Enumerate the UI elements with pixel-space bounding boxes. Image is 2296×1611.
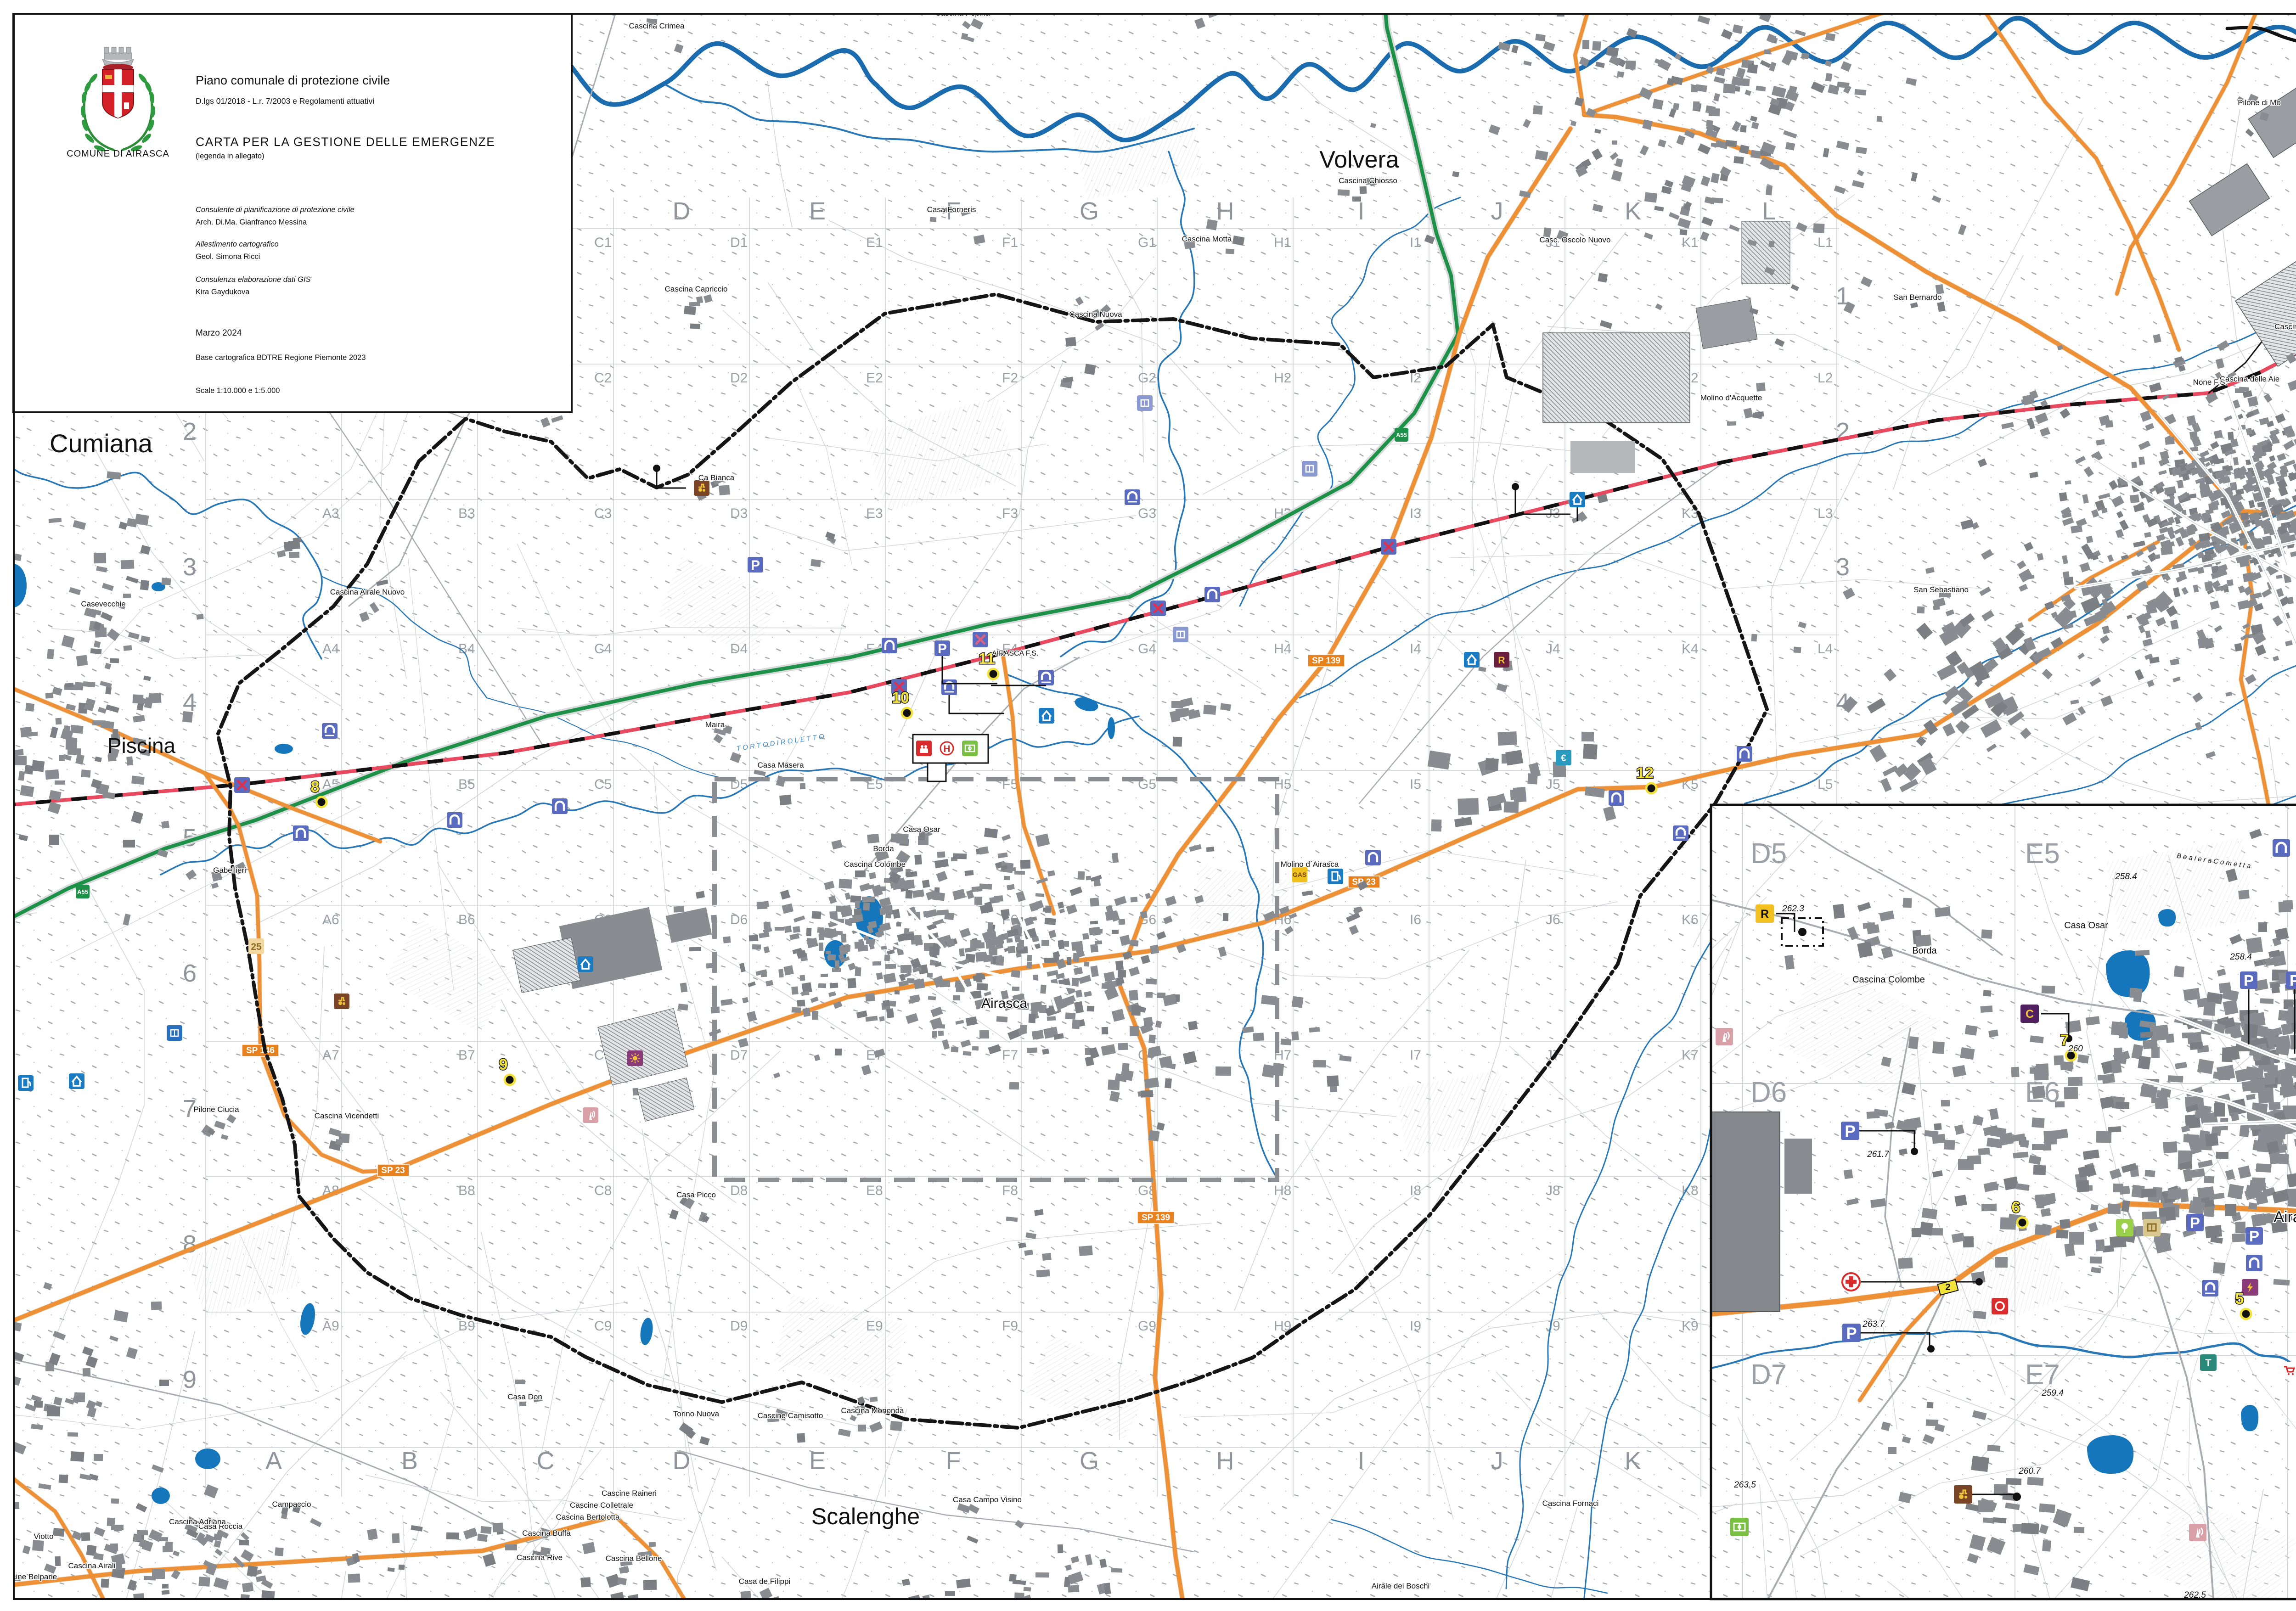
- svg-text:Molino d`Airasca: Molino d`Airasca: [1281, 860, 1339, 869]
- svg-text:D2: D2: [730, 370, 748, 386]
- svg-text:K: K: [1625, 1447, 1641, 1475]
- svg-text:Cascine Colletrale: Cascine Colletrale: [570, 1501, 633, 1510]
- svg-text:G4: G4: [1138, 641, 1156, 657]
- svg-text:I5: I5: [1410, 777, 1421, 792]
- svg-text:E: E: [809, 197, 826, 225]
- svg-text:T: T: [2205, 1357, 2212, 1369]
- svg-text:A6: A6: [322, 912, 339, 927]
- svg-text:C3: C3: [594, 506, 612, 521]
- svg-text:A9: A9: [322, 1319, 339, 1334]
- svg-text:D: D: [673, 197, 691, 225]
- svg-text:Casa Campo Visino: Casa Campo Visino: [953, 1495, 1022, 1504]
- svg-text:D4: D4: [730, 641, 748, 657]
- svg-text:D6: D6: [1750, 1077, 1787, 1108]
- svg-text:Marzo 2024: Marzo 2024: [196, 328, 242, 338]
- svg-text:€: €: [1561, 753, 1566, 763]
- svg-text:D8: D8: [730, 1183, 748, 1198]
- svg-text:3: 3: [183, 553, 197, 581]
- svg-text:H: H: [943, 744, 950, 754]
- svg-text:H8: H8: [1274, 1183, 1291, 1198]
- svg-text:AIRASCA F.S.: AIRASCA F.S.: [992, 650, 1038, 657]
- svg-text:B9: B9: [458, 1319, 475, 1334]
- svg-text:E1: E1: [866, 235, 883, 250]
- svg-text:Cascina Utello: Cascina Utello: [2274, 322, 2296, 331]
- svg-text:Casa Osar: Casa Osar: [2064, 921, 2108, 931]
- svg-text:L: L: [1762, 197, 1776, 225]
- svg-text:C9: C9: [594, 1319, 612, 1334]
- svg-text:Viotto: Viotto: [34, 1532, 53, 1541]
- svg-text:B3: B3: [458, 506, 475, 521]
- svg-text:Consulenza elaborazione dati G: Consulenza elaborazione dati GIS: [196, 275, 310, 284]
- svg-text:L4: L4: [1818, 641, 1833, 657]
- svg-text:I3: I3: [1410, 506, 1421, 521]
- svg-text:D7: D7: [1750, 1359, 1787, 1391]
- svg-text:Cascina Capriccio: Cascina Capriccio: [665, 285, 728, 293]
- svg-text:D.lgs 01/2018 - L.r. 7/2003 e: D.lgs 01/2018 - L.r. 7/2003 e Regolament…: [196, 96, 374, 106]
- svg-text:SP 146: SP 146: [246, 1046, 275, 1055]
- svg-text:Cascina Colombe: Cascina Colombe: [844, 860, 906, 869]
- svg-text:10: 10: [892, 689, 909, 707]
- svg-text:12: 12: [1636, 764, 1654, 782]
- svg-text:E9: E9: [866, 1319, 883, 1334]
- svg-text:J5: J5: [1546, 777, 1560, 792]
- svg-text:C: C: [537, 1447, 555, 1475]
- svg-text:E8: E8: [866, 1183, 883, 1198]
- svg-text:A4: A4: [322, 641, 339, 657]
- svg-text:H1: H1: [1274, 235, 1291, 250]
- svg-text:P: P: [2249, 1228, 2259, 1245]
- svg-text:Cascina Bellone: Cascina Bellone: [606, 1554, 662, 1563]
- svg-text:Casa Forneris: Casa Forneris: [927, 205, 976, 214]
- svg-text:SP 139: SP 139: [1312, 656, 1340, 666]
- svg-text:Cascina Chiosso: Cascina Chiosso: [1339, 176, 1397, 185]
- svg-text:P: P: [2290, 972, 2296, 989]
- svg-text:260: 260: [2068, 1044, 2083, 1054]
- svg-text:Cascina Crimea: Cascina Crimea: [629, 22, 685, 30]
- svg-text:C5: C5: [594, 777, 612, 792]
- svg-text:Torino Nuova: Torino Nuova: [673, 1409, 720, 1418]
- svg-text:E2: E2: [866, 370, 883, 386]
- svg-text:F1: F1: [1002, 235, 1018, 250]
- svg-text:R: R: [1498, 655, 1505, 666]
- svg-text:GAS: GAS: [1293, 871, 1306, 878]
- svg-text:I4: I4: [1410, 641, 1421, 657]
- svg-text:E: E: [809, 1447, 826, 1475]
- svg-text:Cascina delle Aie: Cascina delle Aie: [2220, 375, 2279, 383]
- svg-text:L2: L2: [1818, 370, 1833, 386]
- svg-text:A55: A55: [77, 888, 88, 895]
- svg-text:Scale 1:10.000 e 1:5.000: Scale 1:10.000 e 1:5.000: [196, 387, 280, 395]
- svg-text:P: P: [1846, 1325, 1857, 1342]
- svg-text:I6: I6: [1410, 912, 1421, 927]
- svg-text:A7: A7: [322, 1048, 339, 1063]
- svg-text:B7: B7: [458, 1048, 475, 1063]
- svg-text:E5: E5: [2025, 838, 2060, 870]
- svg-text:5: 5: [2235, 1290, 2244, 1308]
- svg-text:Casevecchie: Casevecchie: [81, 600, 125, 608]
- svg-text:Cascina Colombe: Cascina Colombe: [1852, 975, 1925, 985]
- svg-text:Consulente di pianificazione d: Consulente di pianificazione di protezio…: [196, 206, 355, 214]
- svg-text:H4: H4: [1274, 641, 1291, 657]
- svg-text:J: J: [1491, 197, 1503, 225]
- svg-text:SP 139: SP 139: [1142, 1213, 1170, 1223]
- svg-text:A55: A55: [1396, 432, 1407, 438]
- svg-text:I: I: [1357, 1447, 1364, 1475]
- svg-text:Airasca: Airasca: [2273, 1208, 2296, 1226]
- svg-text:Borda: Borda: [1912, 946, 1937, 956]
- svg-text:Pilone di Mo: Pilone di Mo: [2238, 98, 2281, 107]
- svg-text:J8: J8: [1546, 1183, 1560, 1198]
- svg-text:Cascina Nuova: Cascina Nuova: [1069, 310, 1122, 319]
- svg-text:Cascina Airale Nuovo: Cascina Airale Nuovo: [330, 588, 405, 596]
- svg-text:I9: I9: [1410, 1319, 1421, 1334]
- svg-text:I1: I1: [1410, 235, 1421, 250]
- svg-text:E7: E7: [2025, 1359, 2060, 1391]
- svg-text:B8: B8: [458, 1183, 475, 1198]
- svg-text:7: 7: [2060, 1032, 2069, 1049]
- svg-text:Geol. Simona Ricci: Geol. Simona Ricci: [196, 253, 260, 261]
- svg-text:D7: D7: [730, 1048, 748, 1063]
- svg-text:H: H: [1216, 197, 1234, 225]
- svg-text:P: P: [938, 641, 947, 657]
- svg-text:262.3: 262.3: [1782, 904, 1804, 914]
- svg-text:Molino d'Acquette: Molino d'Acquette: [1700, 393, 1762, 402]
- svg-text:258.4: 258.4: [2229, 952, 2252, 962]
- svg-text:C4: C4: [594, 641, 612, 657]
- svg-text:Maira: Maira: [705, 720, 725, 729]
- svg-text:G: G: [1080, 1447, 1099, 1475]
- svg-text:L3: L3: [1818, 506, 1833, 521]
- svg-text:G1: G1: [1138, 235, 1156, 250]
- svg-text:Base cartografica BDTRE Region: Base cartografica BDTRE Regione Piemonte…: [196, 354, 366, 362]
- svg-text:Cascina Morionda: Cascina Morionda: [841, 1406, 904, 1415]
- svg-text:J: J: [1491, 1447, 1503, 1475]
- svg-text:J4: J4: [1546, 641, 1560, 657]
- svg-text:Cascina Bertolotta: Cascina Bertolotta: [556, 1513, 620, 1521]
- svg-text:F9: F9: [1002, 1319, 1018, 1334]
- svg-text:R: R: [1761, 908, 1769, 921]
- svg-text:F2: F2: [1002, 370, 1018, 386]
- svg-text:258.4: 258.4: [2115, 872, 2137, 881]
- svg-text:Cumiana: Cumiana: [50, 429, 153, 458]
- svg-text:K4: K4: [1682, 641, 1699, 657]
- svg-text:H: H: [1216, 1447, 1234, 1475]
- svg-text:G9: G9: [1138, 1319, 1156, 1334]
- svg-text:C1: C1: [594, 235, 612, 250]
- svg-text:259.4: 259.4: [2041, 1388, 2064, 1398]
- svg-text:Casa Don: Casa Don: [507, 1392, 542, 1401]
- svg-text:F: F: [946, 1447, 961, 1475]
- svg-text:Cascina Fornaci: Cascina Fornaci: [1542, 1499, 1599, 1508]
- svg-text:J9: J9: [1546, 1319, 1560, 1334]
- svg-text:8: 8: [311, 778, 320, 796]
- svg-text:F3: F3: [1002, 506, 1018, 521]
- svg-text:263.5: 263.5: [1733, 1480, 1756, 1490]
- svg-text:Cascina Adriana: Cascina Adriana: [169, 1517, 226, 1526]
- svg-text:COMUNE DI AIRASCA: COMUNE DI AIRASCA: [67, 149, 169, 159]
- svg-text:D1: D1: [730, 235, 748, 250]
- svg-text:261.7: 261.7: [1867, 1150, 1890, 1159]
- svg-text:San Bernardo: San Bernardo: [1894, 293, 1942, 302]
- svg-text:B: B: [401, 1447, 418, 1475]
- svg-text:Cascina Buffa: Cascina Buffa: [522, 1529, 571, 1538]
- svg-text:B5: B5: [458, 777, 475, 792]
- svg-text:D5: D5: [1750, 838, 1787, 870]
- svg-text:E3: E3: [866, 506, 883, 521]
- svg-text:Arch. Di.Ma. Gianfranco Messin: Arch. Di.Ma. Gianfranco Messina: [196, 218, 307, 226]
- svg-text:None F.S.: None F.S.: [2193, 378, 2228, 387]
- svg-text:P: P: [1845, 1123, 1855, 1140]
- svg-text:260.7: 260.7: [2018, 1466, 2041, 1476]
- svg-text:P: P: [751, 558, 760, 573]
- svg-text:K6: K6: [1682, 912, 1699, 927]
- svg-text:K8: K8: [1682, 1183, 1699, 1198]
- svg-text:SP 23: SP 23: [381, 1166, 405, 1175]
- svg-text:Scalenghe: Scalenghe: [811, 1504, 920, 1529]
- svg-text:G: G: [1080, 197, 1099, 225]
- svg-text:K: K: [1625, 197, 1641, 225]
- svg-text:D6: D6: [730, 912, 748, 927]
- svg-text:Cascina Vicendetti: Cascina Vicendetti: [315, 1111, 379, 1120]
- svg-text:Allestimento cartografico: Allestimento cartografico: [195, 240, 279, 248]
- svg-text:Cascina Airali: Cascina Airali: [68, 1561, 116, 1570]
- svg-text:Cascine Camisotto: Cascine Camisotto: [758, 1411, 823, 1420]
- svg-text:I7: I7: [1410, 1048, 1421, 1063]
- svg-text:9: 9: [499, 1056, 508, 1073]
- svg-text:(legenda in allegato): (legenda in allegato): [196, 152, 264, 160]
- svg-text:Casc. Oscolo Nuovo: Casc. Oscolo Nuovo: [1540, 236, 1611, 244]
- svg-text:Casa Picco: Casa Picco: [676, 1190, 716, 1199]
- svg-text:D9: D9: [730, 1319, 748, 1334]
- svg-text:L1: L1: [1818, 235, 1833, 250]
- svg-text:Ca Bianca: Ca Bianca: [698, 473, 735, 482]
- svg-text:A3: A3: [322, 506, 339, 521]
- svg-text:Casa de Filippi: Casa de Filippi: [739, 1577, 790, 1586]
- svg-text:Kira Gaydukova: Kira Gaydukova: [196, 288, 250, 296]
- svg-text:D3: D3: [730, 506, 748, 521]
- svg-text:C2: C2: [594, 370, 612, 386]
- svg-text:Piscina: Piscina: [107, 734, 176, 758]
- svg-text:G2: G2: [1138, 370, 1156, 386]
- svg-text:I8: I8: [1410, 1183, 1421, 1198]
- svg-text:Borda: Borda: [873, 844, 894, 853]
- svg-text:Casa Osar: Casa Osar: [903, 825, 940, 834]
- svg-text:H2: H2: [1274, 370, 1291, 386]
- svg-text:P: P: [2244, 972, 2254, 989]
- svg-text:L5: L5: [1818, 777, 1833, 792]
- svg-text:Airale dei Boschi: Airale dei Boschi: [1372, 1582, 1430, 1590]
- svg-text:6: 6: [183, 960, 197, 987]
- svg-text:C: C: [2026, 1008, 2034, 1021]
- svg-text:Cascine Raineri: Cascine Raineri: [602, 1489, 657, 1498]
- svg-text:Casa Masera: Casa Masera: [757, 761, 804, 769]
- svg-text:9: 9: [183, 1366, 197, 1393]
- svg-text:K9: K9: [1682, 1319, 1699, 1334]
- svg-text:Piano comunale di protezione c: Piano comunale di protezione civile: [196, 73, 390, 87]
- svg-text:Airasca: Airasca: [981, 996, 1027, 1011]
- svg-text:F8: F8: [1002, 1183, 1018, 1198]
- svg-text:2: 2: [1945, 1282, 1950, 1292]
- svg-text:263.7: 263.7: [1862, 1319, 1885, 1329]
- svg-text:Gabellieri: Gabellieri: [213, 866, 246, 875]
- svg-text:25: 25: [251, 942, 262, 952]
- svg-text:Volvera: Volvera: [1319, 146, 1399, 173]
- svg-text:J6: J6: [1546, 912, 1560, 927]
- svg-text:F7: F7: [1002, 1048, 1018, 1063]
- svg-text:A: A: [265, 1447, 282, 1475]
- svg-text:G3: G3: [1138, 506, 1156, 521]
- svg-text:Campaccio: Campaccio: [272, 1500, 311, 1509]
- svg-text:K7: K7: [1682, 1048, 1699, 1063]
- svg-text:Pilone Ciucia: Pilone Ciucia: [193, 1105, 239, 1114]
- svg-text:K1: K1: [1682, 235, 1699, 250]
- svg-text:San Sebastiano: San Sebastiano: [1913, 585, 1969, 594]
- svg-text:2: 2: [183, 418, 197, 445]
- svg-text:CARTA PER LA GESTIONE DELLE EM: CARTA PER LA GESTIONE DELLE EMERGENZE: [196, 135, 495, 149]
- svg-text:P: P: [2190, 1214, 2200, 1231]
- svg-text:B6: B6: [458, 912, 475, 927]
- svg-text:C8: C8: [594, 1183, 612, 1198]
- svg-text:Cascina Rive: Cascina Rive: [517, 1553, 563, 1562]
- svg-text:Cascina Motta: Cascina Motta: [1182, 235, 1232, 243]
- svg-text:3: 3: [1836, 553, 1850, 581]
- svg-text:6: 6: [2012, 1199, 2020, 1216]
